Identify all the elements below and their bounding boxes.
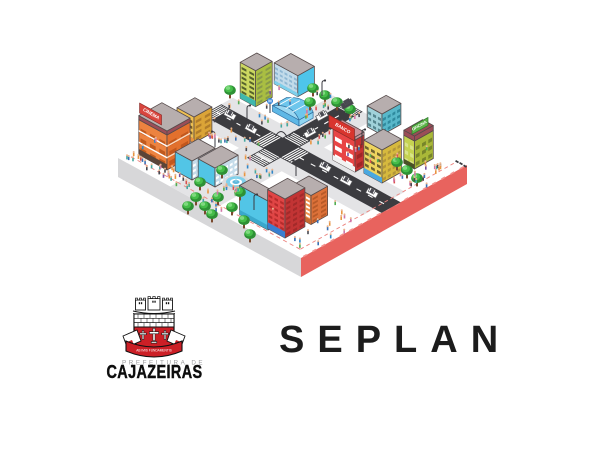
svg-text:CAJAZEIRAS: CAJAZEIRAS: [106, 361, 202, 382]
svg-text:SEPLAN: SEPLAN: [279, 319, 511, 361]
svg-text:M: M: [268, 99, 272, 104]
svg-text:AB IMIS FUNDAMENTIS: AB IMIS FUNDAMENTIS: [136, 349, 172, 353]
